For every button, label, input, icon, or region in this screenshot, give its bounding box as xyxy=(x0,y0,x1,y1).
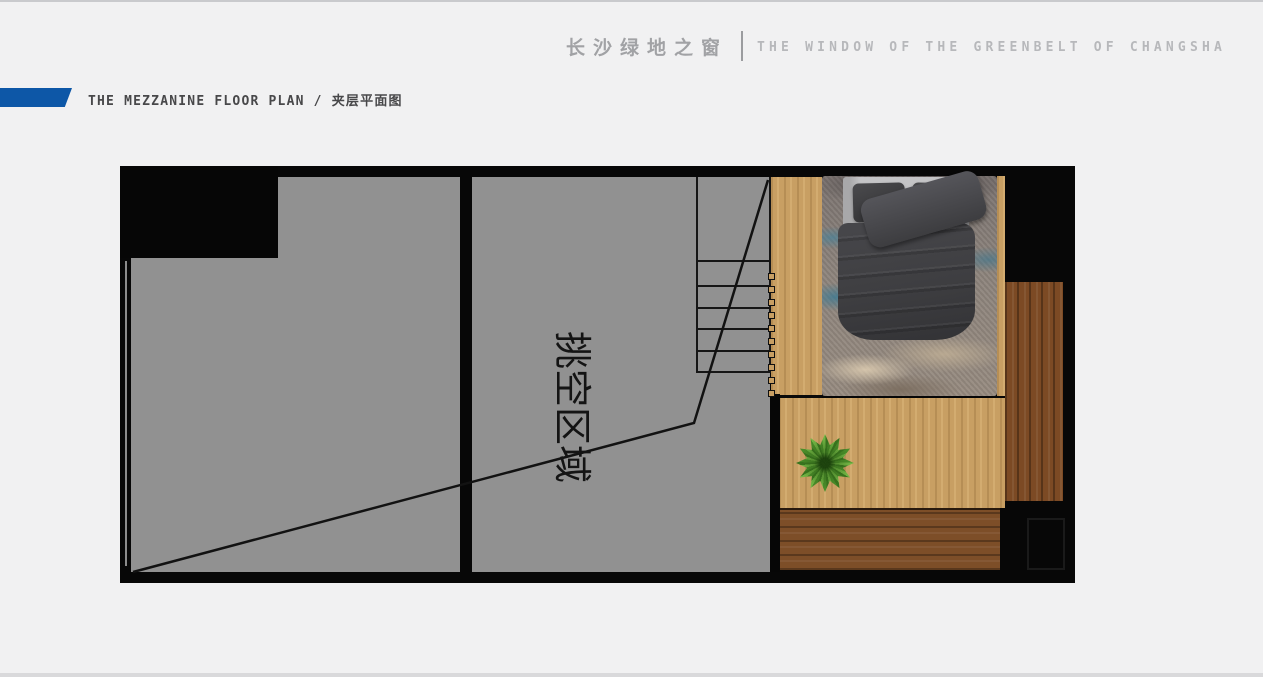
railing-post xyxy=(768,273,775,280)
railing-post xyxy=(768,286,775,293)
brand-name-english: THE WINDOW OF THE GREENBELT OF CHANGSHA xyxy=(757,40,1226,55)
void-area-label: 挑空区域 xyxy=(548,331,596,481)
railing-post xyxy=(768,351,775,358)
closet-door-outline xyxy=(1027,518,1065,570)
staircase xyxy=(696,177,771,373)
page-title: THE MEZZANINE FLOOR PLAN / 夹层平面图 xyxy=(88,90,403,109)
brand-divider-line xyxy=(741,31,743,61)
stair-tread xyxy=(698,350,769,352)
title-accent-flag xyxy=(0,88,72,107)
bedroom-partition-wall xyxy=(770,394,780,572)
stair-tread xyxy=(698,328,769,330)
top-left-wall-block xyxy=(120,166,278,258)
slide: { "header": { "brand_cn": "长沙绿地之窗", "bra… xyxy=(0,0,1263,677)
double-bed xyxy=(843,177,969,340)
floor-plan-image: 挑空区域 xyxy=(120,166,1075,583)
bedroom-wood-floor-edge xyxy=(997,176,1005,396)
top-border-line xyxy=(0,0,1263,2)
bedroom-wood-floor-strip xyxy=(771,177,822,398)
stair-tread xyxy=(698,307,769,309)
railing-post xyxy=(768,364,775,371)
railing-post xyxy=(768,299,775,306)
railing-post xyxy=(768,325,775,332)
duvet xyxy=(838,223,975,340)
railing-post xyxy=(768,390,775,397)
wardrobe-side xyxy=(1005,282,1063,501)
left-wall-seam-line xyxy=(125,261,127,566)
stair-tread xyxy=(698,260,769,262)
brand-name-chinese: 长沙绿地之窗 xyxy=(566,33,728,60)
bottom-border-line xyxy=(0,673,1263,677)
railing-post xyxy=(768,312,775,319)
railing-post xyxy=(768,338,775,345)
dresser-cabinet xyxy=(780,508,1000,570)
railing-post xyxy=(768,377,775,384)
stair-tread xyxy=(698,285,769,287)
